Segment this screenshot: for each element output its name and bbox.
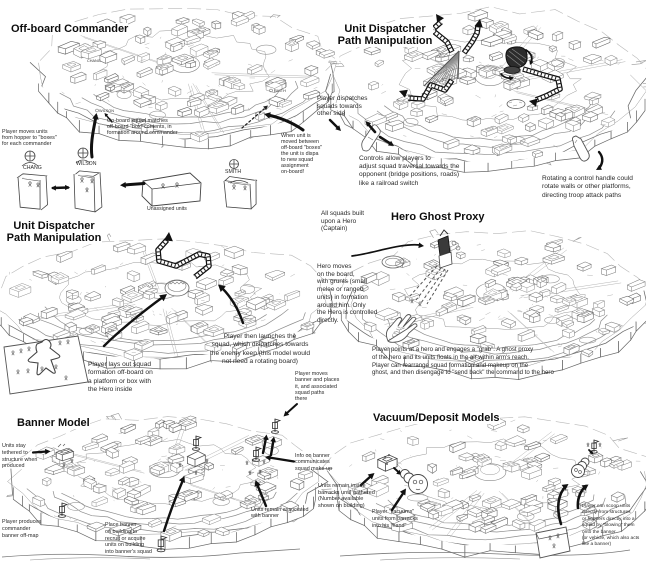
svg-text:SMITH: SMITH xyxy=(274,89,286,93)
svg-text:WILSON: WILSON xyxy=(99,109,114,113)
svg-text:CHANG: CHANG xyxy=(87,59,101,63)
